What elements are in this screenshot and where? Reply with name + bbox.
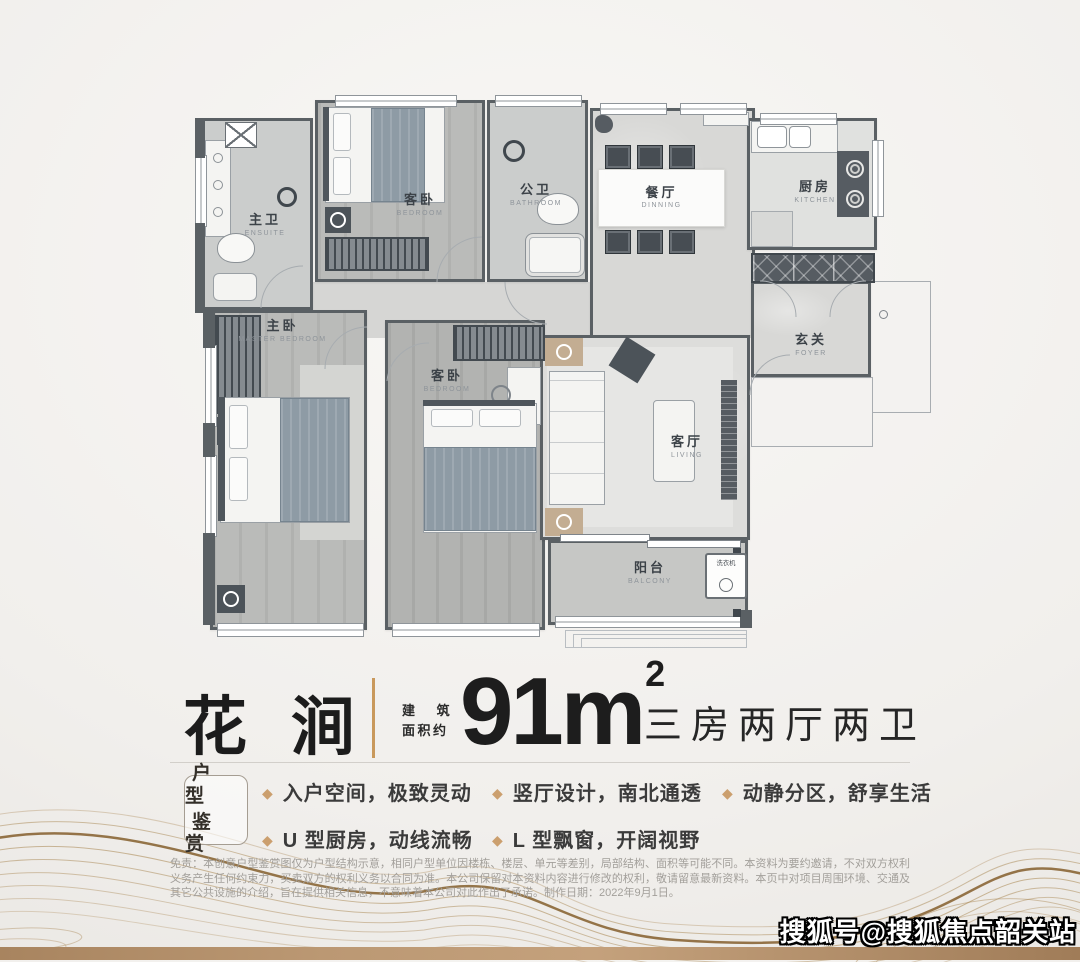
ensuite-cabinet [225,122,257,148]
balcony-corner-dot [733,609,741,617]
washing-machine: 洗衣机 [705,553,747,599]
entry-door-dot [879,310,888,319]
diamond-bullet-icon [722,785,734,801]
area-superscript: 2 [645,653,665,694]
balcony-steps-inner2 [581,638,747,648]
label-bedroom2: 客卧 BEDROOM [407,369,487,394]
ensuite-basin [213,273,257,301]
label-master: 主卧 MASTER BEDROOM [235,319,330,344]
label-bedroom-top: 客卧 BEDROOM [380,193,460,218]
shower-head [277,187,297,207]
area-number: 91m [460,658,643,765]
label-ensuite-en: ENSUITE [225,230,305,238]
diamond-bullet-icon [492,785,504,801]
area-label: 建 筑 面积约 [402,701,459,741]
label-bedroom-top-zh: 客卧 [404,192,436,207]
window-dining-top-1 [600,103,667,115]
room-foyer [751,281,871,377]
dining-label: 餐厅 DINNING [641,186,681,211]
dining-chair [637,230,663,254]
master-blanket [280,398,349,522]
dining-chair [605,230,631,254]
vanity-knob [213,180,223,190]
feature-text: U 型厨房，动线流畅 [283,830,473,852]
pillow [431,409,473,427]
label-balcony: 阳台 BALCONY [600,561,700,586]
label-master-zh: 主卧 [266,318,298,333]
balcony-sliding-door [560,534,650,542]
floor-plan: 餐厅 DINNING 洗衣机 [185,85,985,663]
entry-corridor-right [869,281,931,413]
label-ensuite-zh: 主卫 [249,212,281,227]
wall-segment [203,310,215,348]
kitchen-fridge [751,211,793,247]
window-kitchen-right [872,140,884,217]
label-living-zh: 客厅 [671,434,703,449]
features-badge-line2: 鉴 赏 [185,812,247,858]
feature-list: 入户空间，极致灵动 竖厅设计，南北通透 动静分区，舒享生活 U 型厨房，动线流畅… [262,777,922,853]
pillow [333,157,351,195]
stove-burner [846,160,864,178]
label-master-en: MASTER BEDROOM [235,336,330,344]
label-kitchen: 厨房 KITCHEN [760,180,870,205]
label-bedroom-top-en: BEDROOM [380,210,460,218]
label-balcony-en: BALCONY [600,578,700,586]
vanity-knob [213,153,223,163]
gold-divider-line [372,678,375,758]
pillow [479,409,521,427]
diamond-bullet-icon [262,832,274,848]
feature-text: 竖厅设计，南北通透 [513,783,702,805]
dining-label-en: DINNING [641,202,681,210]
label-foyer-en: FOYER [771,350,851,358]
features-badge-line1: 户 型 [185,763,247,809]
feature-item: U 型厨房，动线流畅 [262,824,492,853]
wall-segment [195,223,205,313]
vanity-knob [213,207,223,217]
label-bedroom2-en: BEDROOM [407,386,487,394]
area-label-line1: 建 筑 [402,701,459,721]
bed-top-headboard [323,107,329,201]
shoe-cabinet [751,253,875,283]
sofa [549,371,605,505]
bedroom2-headboard [423,400,535,406]
master-bed-headboard [218,397,225,521]
bathtub [525,233,585,277]
label-living: 客厅 LIVING [647,435,727,460]
dining-chair [669,145,695,169]
pillow [333,113,351,151]
wall-segment [195,118,205,158]
label-bathroom-zh: 公卫 [520,182,552,197]
dining-chair [669,230,695,254]
label-bedroom2-zh: 客卧 [431,368,463,383]
feature-item: 动静分区，舒享生活 [722,777,922,806]
label-ensuite: 主卫 ENSUITE [225,213,305,238]
wall-segment [740,610,752,628]
living-corner-box [545,508,583,536]
label-bathroom: 公卫 BATHROOM [491,183,581,208]
label-foyer: 玄关 FOYER [771,333,851,358]
bedroom-top-wardrobe [325,237,429,271]
bathroom-sink [503,140,525,162]
feature-text: L 型飘窗，开阔视野 [513,830,700,852]
entry-corridor-bottom [751,377,873,447]
label-kitchen-zh: 厨房 [799,179,831,194]
window-dining-top-2 [680,103,747,115]
dining-plant [595,115,613,133]
label-bathroom-en: BATHROOM [491,200,581,208]
dining-table: 餐厅 DINNING [598,169,725,227]
layout-description: 三房两厅两卫 [644,694,926,749]
pillow [229,457,248,501]
feature-text: 动静分区，舒享生活 [743,783,932,805]
feature-item: 入户空间，极致灵动 [262,777,492,806]
bedroom2-wardrobe [453,325,545,361]
dining-label-zh: 餐厅 [645,185,677,200]
washing-machine-label: 洗衣机 [709,559,743,568]
dining-chair [637,145,663,169]
pillow [229,405,248,449]
diamond-bullet-icon [262,785,274,801]
balcony-sliding-door [647,540,741,548]
label-kitchen-en: KITCHEN [760,197,870,205]
bed-top-blanket [371,108,425,202]
unit-name: 花 涧 [183,676,369,768]
feature-item: L 型飘窗，开阔视野 [492,824,722,853]
wall-segment [203,533,215,625]
disclaimer-text: 免责：本创意户型鉴赏图仅为户型结构示意，相同户型单位因楼栋、楼层、单元等差别，局… [170,857,910,901]
window-balcony [555,616,742,628]
bedroom2-blanket [424,447,536,531]
window-kitchen-top [760,113,837,125]
kitchen-sink-1 [757,126,787,148]
features-section-badge: 户 型 鉴 赏 [184,775,248,845]
window-bedroomtop-top [335,95,457,107]
window-master-left-1 [205,345,217,427]
window-bathroom-top [495,95,582,107]
section-divider-line [170,762,910,763]
wall-segment [203,423,215,457]
watermark-text: 搜狐号@搜狐焦点韶关站 [780,912,1076,949]
label-foyer-zh: 玄关 [795,332,827,347]
kitchen-sink-2 [789,126,811,148]
diamond-bullet-icon [492,832,504,848]
bedroom-top-rug [325,207,351,233]
window-master-left-2 [205,455,217,537]
feature-item: 竖厅设计，南北通透 [492,777,722,806]
label-living-en: LIVING [647,452,727,460]
area-value: 91m2 [460,656,665,760]
window-master-bay [217,623,364,637]
area-label-line2: 面积约 [402,721,459,741]
master-corner-box [217,585,245,613]
living-corner-box [545,338,583,366]
window-bedroom2-bay [392,623,540,637]
feature-text: 入户空间，极致灵动 [283,783,472,805]
label-balcony-zh: 阳台 [634,560,666,575]
dining-chair [605,145,631,169]
window-ensuite-left [195,155,207,227]
